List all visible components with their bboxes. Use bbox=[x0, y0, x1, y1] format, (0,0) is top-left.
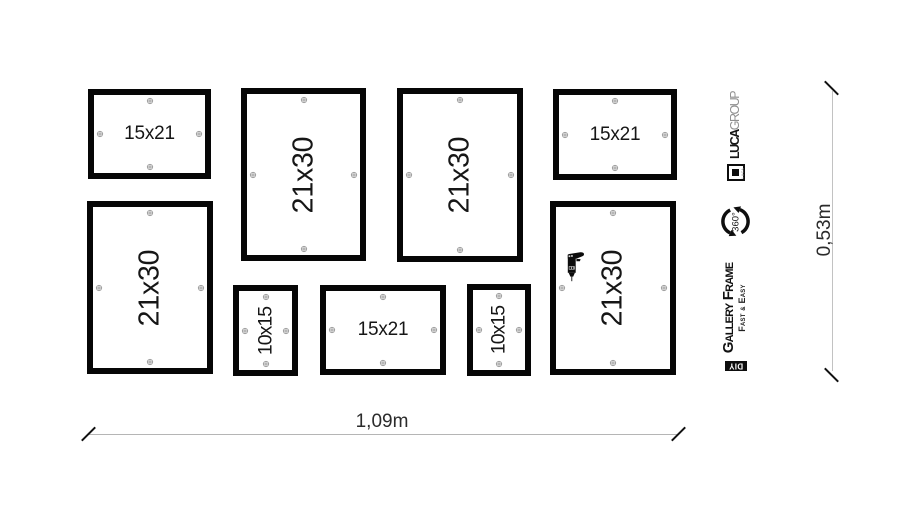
svg-text:360°: 360° bbox=[731, 212, 742, 232]
